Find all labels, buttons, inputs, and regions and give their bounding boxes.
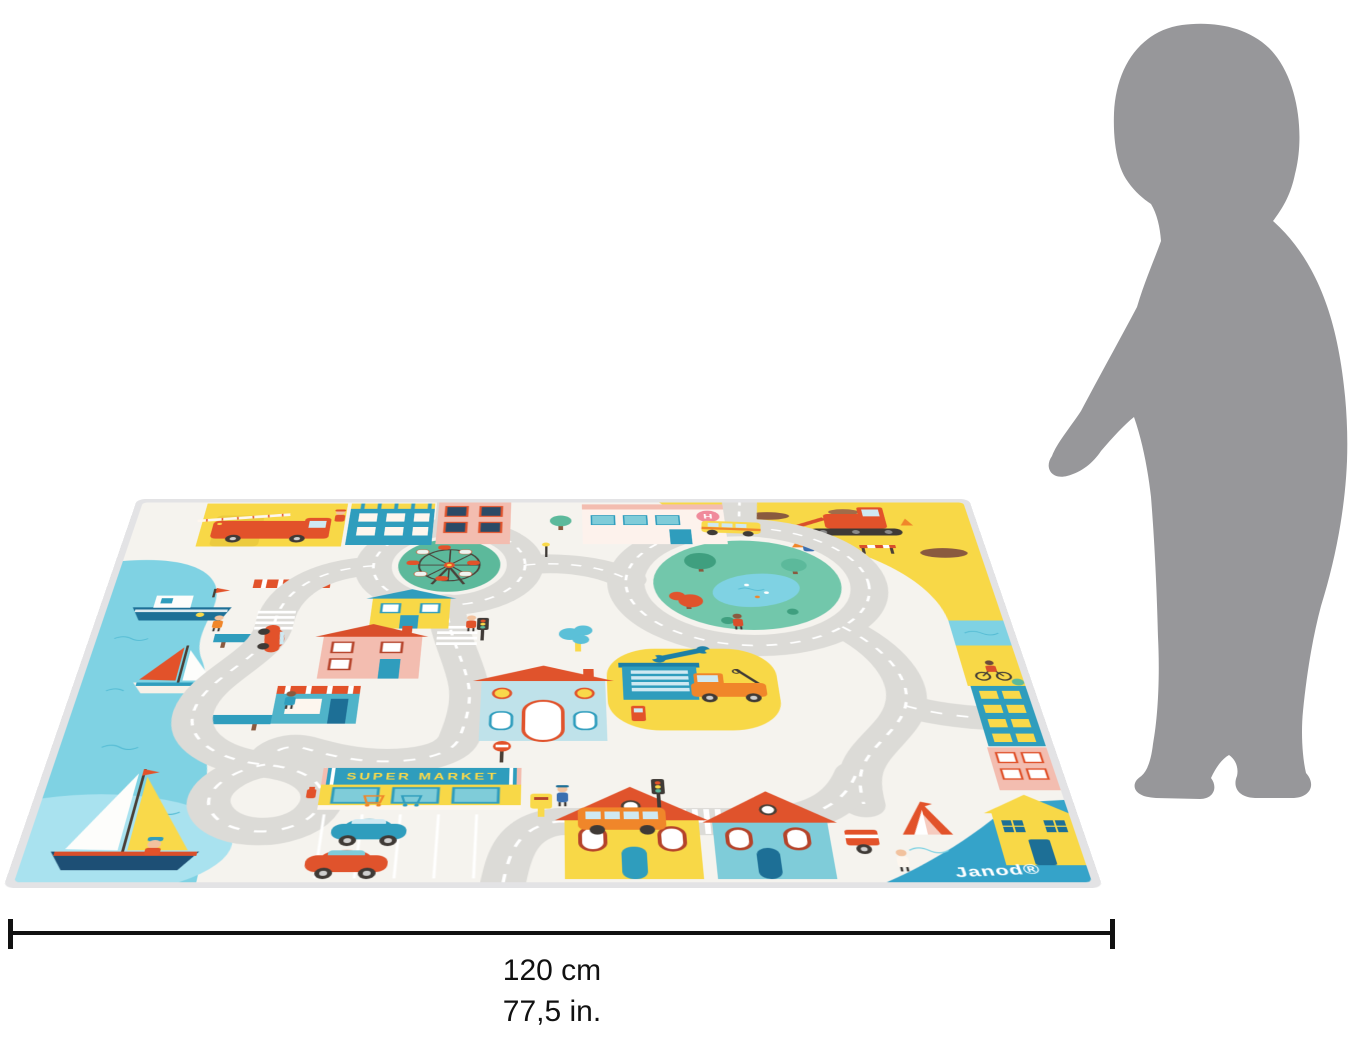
dimension-line <box>8 931 1115 935</box>
child-silhouette <box>1020 15 1352 805</box>
top-teal-building <box>345 504 435 545</box>
gas-pump-icon <box>631 706 646 721</box>
top-pink-building <box>435 502 511 544</box>
dimension-label-cm: 120 cm <box>352 951 752 992</box>
dimension-end-cap-left <box>8 919 13 949</box>
dimension-end-cap-right <box>1110 919 1115 949</box>
play-mat-illustration: Janod® <box>3 499 1103 888</box>
dimension-label-in: 77,5 in. <box>352 992 752 1033</box>
hospital-sign-letter: H <box>703 513 713 520</box>
fire-station <box>190 504 348 547</box>
dimension-labels: 120 cm 77,5 in. <box>352 951 752 1032</box>
play-mat: Janod® <box>3 499 1103 888</box>
product-image: Janod® <box>0 0 1352 1043</box>
awning-shop <box>270 686 360 724</box>
supermarket-sign: SUPER MARKET <box>346 772 499 782</box>
garage-area <box>606 644 786 730</box>
